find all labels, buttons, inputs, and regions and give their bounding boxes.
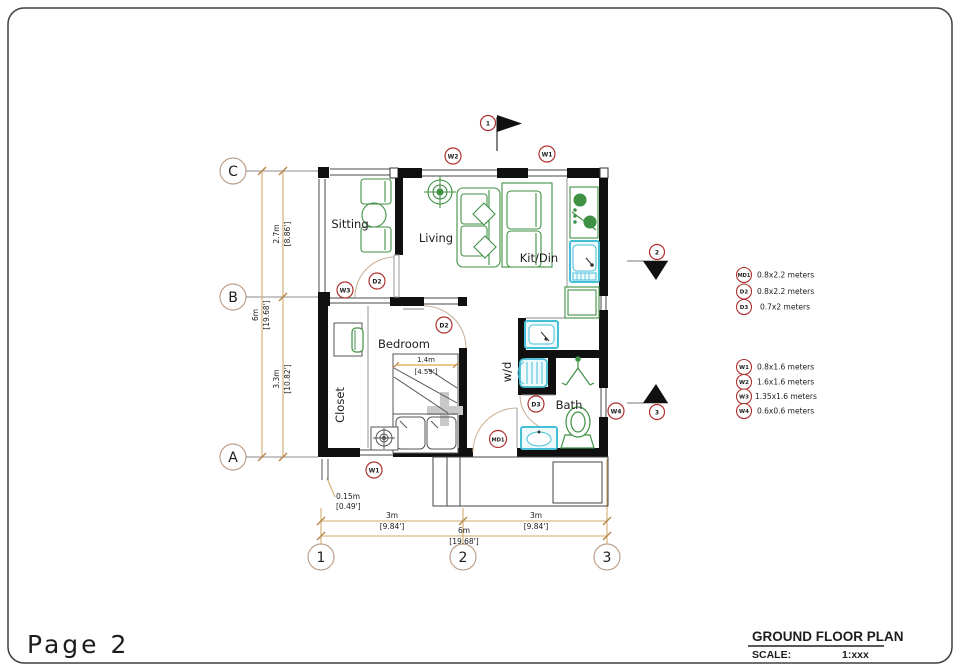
dim-bottom-total-m: 6m xyxy=(458,526,470,535)
room-label-living: Living xyxy=(419,231,453,245)
stove xyxy=(570,187,598,238)
closet-desk xyxy=(334,323,363,356)
bath-sink xyxy=(521,427,557,449)
grid-col-3: 3 xyxy=(603,550,612,566)
room-label-bath: Bath xyxy=(556,398,583,412)
dim-left-lower-m: 3.3m xyxy=(272,369,281,388)
washer-dryer xyxy=(518,359,547,387)
tag-d3: D3 xyxy=(531,402,540,409)
dim-bottom-right-ft: [9.84'] xyxy=(524,522,549,531)
legend-tag-d3: D3 xyxy=(740,305,749,311)
legend-size-w2: 1.6x1.6 meters xyxy=(757,378,814,387)
legend-tag-w1: W1 xyxy=(739,365,749,371)
north-label: 1 xyxy=(486,121,490,128)
scale-label: SCALE: xyxy=(752,649,791,661)
floor-plan-page: C B A 1 2 3 xyxy=(0,0,960,671)
tag-d2-sitting: D2 xyxy=(372,279,381,286)
dim-left-lower-ft: [10.82'] xyxy=(283,364,292,393)
tag-w2: W2 xyxy=(448,154,459,161)
tag-w3: W3 xyxy=(340,288,351,295)
legend: MD1 D2 D3 W1 W2 W3 W4 0.8x2.2 meters 0.8… xyxy=(737,268,818,419)
tag-md1: MD1 xyxy=(491,438,504,444)
dim-bottom-right-m: 3m xyxy=(530,511,542,520)
dim-bed-m: 1.4m xyxy=(417,356,435,364)
tag-w1-top: W1 xyxy=(542,152,553,159)
tag-w1-bottom: W1 xyxy=(369,468,380,475)
legend-size-w3: 1.35x1.6 meters xyxy=(755,392,817,401)
section-marker-3: 3 xyxy=(627,384,668,420)
legend-tag-w2: W2 xyxy=(739,380,749,386)
drawing-title: GROUND FLOOR PLAN xyxy=(752,629,904,644)
room-label-kitdin: Kit/Din xyxy=(520,251,558,265)
grid-row-c: C xyxy=(228,164,238,180)
room-label-closet: Closet xyxy=(333,387,347,423)
legend-tag-md1: MD1 xyxy=(738,273,751,279)
dim-bottom-left-ft: [9.84'] xyxy=(380,522,405,531)
floor-plan-drawing: C B A 1 2 3 xyxy=(0,0,960,671)
sitting-furniture xyxy=(361,179,391,252)
grid-col-1: 1 xyxy=(317,550,326,566)
kitchen-sink xyxy=(570,241,599,282)
dim-bottom-left-m: 3m xyxy=(386,511,398,520)
dim-offset-ft: [0.49'] xyxy=(336,502,361,511)
title-block: GROUND FLOOR PLAN SCALE: 1:xxx xyxy=(748,629,904,661)
page-number-label: Page 2 xyxy=(27,630,129,659)
living-fan-icon xyxy=(424,176,456,208)
fridge xyxy=(565,287,599,318)
grid-col-2: 2 xyxy=(459,550,468,566)
legend-size-w4: 0.6x0.6 meters xyxy=(757,407,814,416)
scale-value: 1:xxx xyxy=(842,649,869,661)
room-label-bedroom: Bedroom xyxy=(378,337,430,351)
toilet xyxy=(561,407,594,448)
tag-d2-bedroom: D2 xyxy=(439,323,448,330)
dim-left-upper-ft: [8.86'] xyxy=(283,222,292,247)
section-label-3: 3 xyxy=(655,410,659,417)
section-label-2: 2 xyxy=(655,250,659,257)
legend-size-md1: 0.8x2.2 meters xyxy=(757,271,814,280)
room-label-wd: w/d xyxy=(500,362,514,383)
tag-w4: W4 xyxy=(611,409,622,416)
legend-tag-d2: D2 xyxy=(740,290,749,296)
grid-row-a: A xyxy=(228,450,238,466)
dim-bed-ft: [4.59'] xyxy=(415,368,438,376)
legend-tag-w4: W4 xyxy=(739,409,749,415)
dim-bottom-total-ft: [19.68'] xyxy=(449,537,478,546)
legend-size-d3: 0.7x2 meters xyxy=(760,303,810,312)
page-border xyxy=(8,8,952,663)
section-marker-2: 2 xyxy=(627,245,668,281)
dim-offset-m: 0.15m xyxy=(336,492,360,501)
legend-tag-w3: W3 xyxy=(739,395,749,401)
north-marker: 1 xyxy=(481,115,523,151)
dim-left-total-m: 6m xyxy=(251,309,260,321)
bedroom-fan-icon xyxy=(371,427,398,450)
laundry-sink xyxy=(525,321,558,348)
shower-icon xyxy=(562,357,594,385)
dim-left-total-ft: [19.68'] xyxy=(262,300,271,329)
legend-size-d2: 0.8x2.2 meters xyxy=(757,287,814,296)
living-sofa xyxy=(457,188,500,267)
legend-size-w1: 0.8x1.6 meters xyxy=(757,363,814,372)
porch-steps xyxy=(433,457,608,506)
room-label-sitting: Sitting xyxy=(331,217,368,231)
dim-left-upper-m: 2.7m xyxy=(272,224,281,243)
grid-row-b: B xyxy=(228,290,238,306)
